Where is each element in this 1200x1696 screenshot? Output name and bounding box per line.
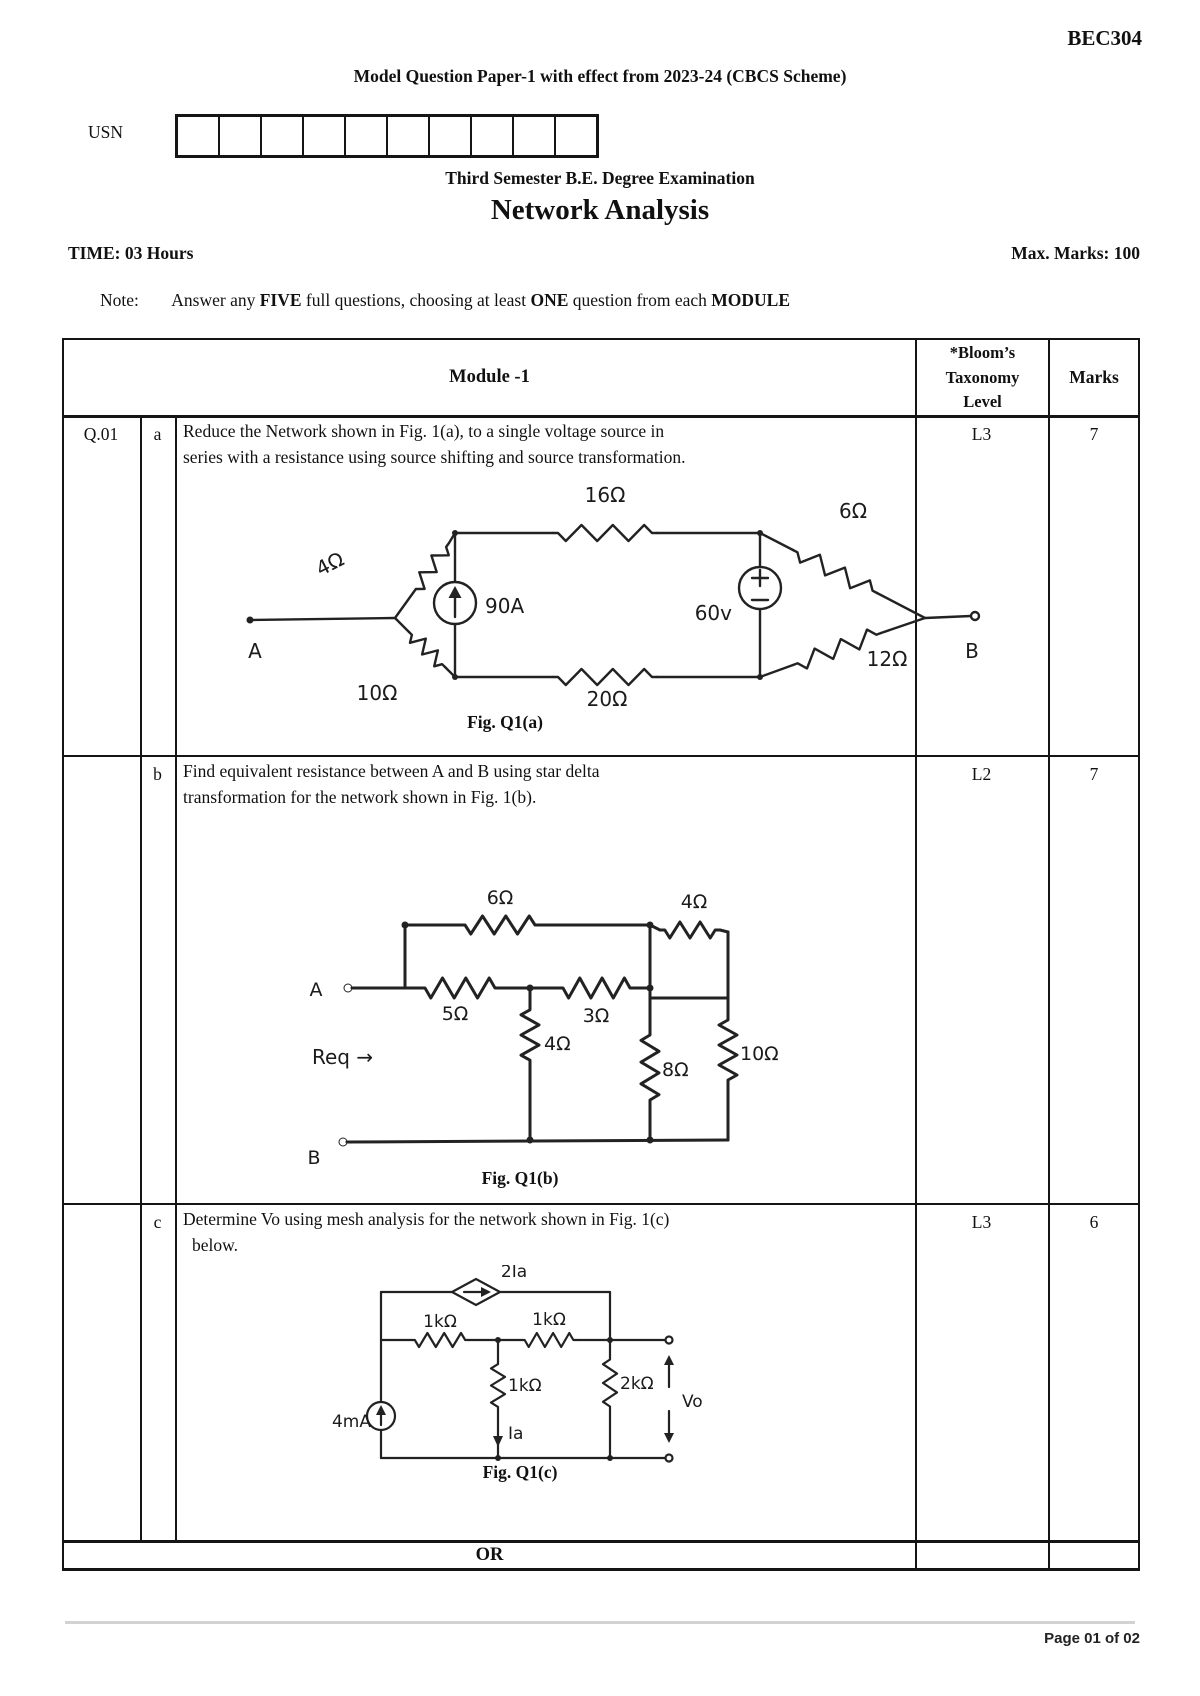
resistor-10ohm — [409, 632, 445, 667]
label-node-b: B — [307, 1147, 320, 1169]
resistor-16ohm — [553, 525, 657, 541]
bloom-header-line1: *Bloom’s — [917, 341, 1048, 366]
terminal-vo-minus-icon — [666, 1455, 673, 1462]
paper-code: BEC304 — [1067, 26, 1142, 51]
wires-q1a — [247, 525, 972, 685]
table-border — [62, 415, 1140, 418]
question-a-line2: series with a resistance using source sh… — [183, 447, 686, 468]
exam-line: Third Semester B.E. Degree Examination — [0, 168, 1200, 189]
label-1k-left: 1kΩ — [423, 1312, 457, 1332]
note-text-2: full questions, choosing at least — [302, 290, 531, 310]
resistor-1k-left — [410, 1333, 470, 1347]
figure-q1b-circuit: 6Ω 4Ω 5Ω 3Ω 4Ω 8Ω 10Ω A B Req → — [300, 880, 790, 1170]
current-source-90a-icon — [434, 582, 476, 624]
label-6ohm: 6Ω — [487, 887, 514, 909]
label-5ohm: 5Ω — [442, 1003, 469, 1025]
resistor-4ohm-mid — [521, 1005, 539, 1065]
time-label: TIME: 03 Hours — [68, 243, 193, 264]
usn-label: USN — [88, 122, 123, 143]
label-2k: 2kΩ — [620, 1374, 654, 1394]
ia-arrow-icon — [493, 1436, 503, 1447]
resistor-20ohm — [553, 669, 657, 685]
table-border — [1048, 338, 1050, 1571]
usn-cell — [472, 117, 514, 155]
label-4ohm-mid: 4Ω — [544, 1033, 571, 1055]
current-source-4ma-icon — [367, 1402, 395, 1430]
dependent-source-2ia-icon — [452, 1279, 500, 1305]
label-node-a: A — [248, 639, 262, 663]
page-number: Page 01 of 02 — [1044, 1630, 1140, 1647]
resistor-6ohm — [460, 916, 540, 934]
or-separator: OR — [64, 1542, 915, 1568]
bloom-header-line2: Taxonomy — [917, 366, 1048, 391]
note-label: Note: — [100, 290, 139, 310]
label-20ohm: 20Ω — [587, 687, 628, 711]
part-label-b: b — [140, 764, 175, 785]
table-border — [62, 338, 64, 1571]
figure-q1a-caption: Fig. Q1(a) — [175, 712, 835, 733]
label-node-b: B — [965, 639, 979, 663]
vo-arrows-icon — [664, 1355, 674, 1443]
note-text-3: question from each — [568, 290, 711, 310]
label-6ohm: 6Ω — [839, 499, 867, 523]
question-c-line2: below. — [192, 1235, 238, 1256]
usn-cell — [304, 117, 346, 155]
resistor-10ohm — [719, 1015, 737, 1085]
terminal-vo-plus-icon — [666, 1337, 673, 1344]
usn-cell — [514, 117, 556, 155]
terminal-b-icon — [971, 612, 979, 620]
exam-paper-page: BEC304 Model Question Paper-1 with effec… — [0, 0, 1200, 1696]
label-4ohm-top: 4Ω — [681, 891, 708, 913]
resistor-2k — [603, 1355, 617, 1411]
question-number: Q.01 — [62, 424, 140, 445]
part-label-c: c — [140, 1212, 175, 1233]
question-a-line1: Reduce the Network shown in Fig. 1(a), t… — [183, 421, 664, 442]
module-header: Module -1 — [64, 340, 915, 415]
part-label-a: a — [140, 424, 175, 445]
question-b-line2: transformation for the network shown in … — [183, 787, 536, 808]
usn-cell — [346, 117, 388, 155]
table-border — [62, 1568, 1140, 1571]
resistor-1k-mid — [491, 1360, 505, 1411]
usn-boxes — [175, 114, 599, 158]
marks-b: 7 — [1048, 764, 1140, 785]
usn-cell — [178, 117, 220, 155]
bloom-level-b: L2 — [915, 764, 1048, 785]
bloom-header-line3: Level — [917, 390, 1048, 415]
resistor-3ohm — [558, 978, 635, 998]
label-4ohm: 4Ω — [312, 547, 348, 581]
table-border — [62, 1203, 1140, 1205]
label-req: Req → — [312, 1045, 373, 1069]
resistor-8ohm — [641, 1030, 659, 1105]
note-bold-five: FIVE — [260, 290, 302, 310]
label-2ia: 2Ia — [501, 1265, 527, 1282]
resistor-6ohm — [793, 550, 877, 593]
label-node-a: A — [310, 979, 323, 1001]
figure-q1a-circuit: 16Ω 6Ω 4Ω 10Ω 20Ω 12Ω 90A 60v A B — [235, 468, 985, 713]
note-bold-one: ONE — [530, 290, 568, 310]
question-b-line1: Find equivalent resistance between A and… — [183, 761, 600, 782]
usn-cell — [220, 117, 262, 155]
marks-a: 7 — [1048, 424, 1140, 445]
voltage-source-60v-icon — [739, 567, 781, 609]
label-16ohm: 16Ω — [585, 483, 626, 507]
marks-c: 6 — [1048, 1212, 1140, 1233]
usn-cell — [556, 117, 596, 155]
label-10ohm: 10Ω — [357, 681, 398, 705]
label-90a: 90A — [485, 594, 524, 618]
usn-cell — [430, 117, 472, 155]
marks-header: Marks — [1050, 340, 1138, 415]
resistor-5ohm — [420, 978, 500, 998]
figure-q1c-caption: Fig. Q1(c) — [175, 1462, 865, 1483]
label-4ma: 4mA — [332, 1412, 371, 1432]
figure-q1c-circuit: 2Ia 1kΩ 1kΩ 1kΩ Ia 2kΩ 4mA Vo — [330, 1265, 750, 1465]
figure-q1b-caption: Fig. Q1(b) — [175, 1168, 865, 1189]
label-3ohm: 3Ω — [583, 1005, 610, 1027]
label-1k-right: 1kΩ — [532, 1310, 566, 1330]
usn-cell — [388, 117, 430, 155]
footer-divider — [65, 1621, 1135, 1624]
wires-q1b — [339, 916, 737, 1146]
label-vo: Vo — [682, 1392, 703, 1412]
label-1k-mid: 1kΩ — [508, 1376, 542, 1396]
note-line: Note: Answer any FIVE full questions, ch… — [100, 290, 790, 311]
note-text-1: Answer any — [171, 290, 259, 310]
label-10ohm: 10Ω — [740, 1043, 779, 1065]
label-8ohm: 8Ω — [662, 1059, 689, 1081]
paper-subtitle: Model Question Paper-1 with effect from … — [0, 66, 1200, 87]
usn-cell — [262, 117, 304, 155]
table-border — [140, 417, 142, 1540]
course-title: Network Analysis — [0, 194, 1200, 227]
max-marks-label: Max. Marks: 100 — [1011, 243, 1140, 264]
table-border — [62, 755, 1140, 757]
bloom-header: *Bloom’s Taxonomy Level — [917, 341, 1048, 415]
label-60v: 60v — [695, 601, 732, 625]
table-border — [175, 417, 177, 1540]
bloom-level-a: L3 — [915, 424, 1048, 445]
table-border — [1138, 338, 1140, 1571]
label-12ohm: 12Ω — [867, 647, 908, 671]
note-bold-module: MODULE — [711, 290, 790, 310]
resistor-1k-right — [520, 1333, 578, 1347]
resistor-4ohm-top — [660, 922, 720, 938]
bloom-level-c: L3 — [915, 1212, 1048, 1233]
question-c-line1: Determine Vo using mesh analysis for the… — [183, 1209, 669, 1230]
label-ia: Ia — [508, 1424, 523, 1444]
